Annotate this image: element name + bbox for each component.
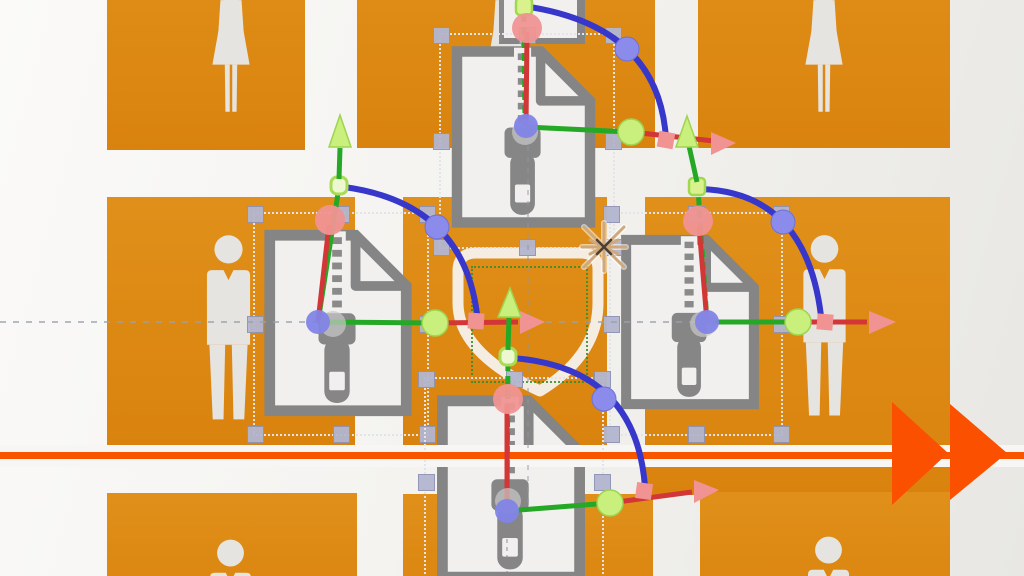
axis-y-arrow[interactable]	[676, 116, 698, 147]
axis-y-marker[interactable]	[689, 178, 705, 195]
scale-handle-circle[interactable]	[422, 310, 448, 336]
axis-y-marker[interactable]	[516, 0, 532, 15]
selection-handle[interactable]	[433, 27, 450, 44]
male-silhouette-partial-icon	[789, 526, 868, 576]
cursor-star-crosshair-icon	[576, 219, 632, 275]
axis-handle-circle[interactable]	[493, 384, 523, 414]
axis-y-arrow[interactable]	[329, 115, 351, 147]
zip-document-left[interactable]	[260, 224, 416, 422]
rotation-handle[interactable]	[592, 387, 616, 411]
rotation-handle[interactable]	[615, 37, 639, 61]
selection-handle[interactable]	[594, 474, 611, 491]
rotation-handle[interactable]	[425, 215, 449, 239]
pivot-handle[interactable]	[695, 310, 719, 334]
pivot-handle[interactable]	[306, 310, 330, 334]
target-square[interactable]	[816, 313, 833, 330]
selection-handle[interactable]	[333, 426, 350, 443]
female-silhouette-icon	[793, 0, 855, 121]
axis-y-line	[689, 146, 697, 182]
fast-forward-arrow-icon[interactable]	[950, 404, 1007, 500]
target-square[interactable]	[657, 131, 676, 150]
rotation-handle[interactable]	[771, 210, 795, 234]
selection-handle[interactable]	[419, 426, 436, 443]
selection-handle[interactable]	[418, 474, 435, 491]
axis-handle-circle[interactable]	[683, 206, 713, 236]
axis-handle-circle[interactable]	[315, 205, 345, 235]
editor-canvas	[0, 0, 1024, 576]
pivot-handle[interactable]	[514, 114, 538, 138]
scale-handle-circle[interactable]	[618, 119, 644, 145]
selection-handle[interactable]	[247, 426, 264, 443]
horizontal-alignment-guide	[0, 321, 768, 323]
axis-y-line	[339, 148, 340, 179]
axis-y-marker[interactable]	[500, 348, 516, 365]
target-square[interactable]	[467, 312, 484, 329]
axis-handle-circle[interactable]	[512, 13, 542, 43]
selection-handle[interactable]	[418, 371, 435, 388]
axis-y-marker[interactable]	[331, 177, 347, 194]
male-silhouette-partial-icon	[191, 529, 270, 576]
selection-handle[interactable]	[773, 426, 790, 443]
timeline-line	[0, 452, 1024, 459]
selection-handle[interactable]	[433, 133, 450, 150]
scale-handle-circle[interactable]	[785, 309, 811, 335]
pivot-handle[interactable]	[495, 499, 519, 523]
selection-handle[interactable]	[603, 426, 620, 443]
selection-handle[interactable]	[247, 316, 264, 333]
female-silhouette-icon	[200, 0, 262, 121]
selection-handle[interactable]	[688, 426, 705, 443]
scale-handle-circle[interactable]	[597, 490, 623, 516]
target-square[interactable]	[635, 482, 653, 500]
selection-handle[interactable]	[603, 316, 620, 333]
selection-handle[interactable]	[247, 206, 264, 223]
zip-document-bottom[interactable]	[430, 391, 592, 576]
